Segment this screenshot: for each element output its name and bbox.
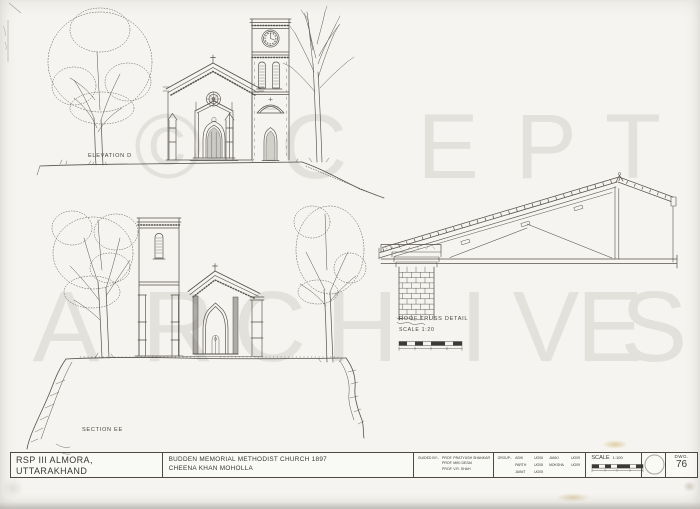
guide-name: PROF. V.R. SHAH bbox=[442, 467, 490, 472]
watermark-letter: R bbox=[142, 277, 214, 377]
watermark-letter: P bbox=[515, 101, 576, 193]
guided-by-cell: GUIDED BY:- PROF. PRATYUSH SHANKAR PROF.… bbox=[414, 453, 494, 477]
drawing-title-cell: BUDDEN MEMORIAL METHODIST CHURCH 1897 CH… bbox=[163, 453, 414, 477]
truss-title-label: ROOF TRUSS DETAIL bbox=[399, 316, 468, 322]
member-code: UG05 bbox=[534, 470, 547, 477]
scale-cell: SCALE1:100 bbox=[586, 453, 642, 477]
guided-by-label: GUIDED BY:- bbox=[418, 456, 439, 477]
dwg-cell: DWG. 76 bbox=[666, 453, 697, 477]
drawing-sheet: © C E P T A R C H I V E S bbox=[0, 0, 700, 509]
watermark-letter: H bbox=[326, 277, 398, 377]
member-name: MOKSHA bbox=[549, 463, 569, 470]
watermark-letter: I bbox=[460, 277, 488, 377]
watermark-letter: S bbox=[621, 277, 688, 377]
title-block: RSP III ALMORA, UTTARAKHAND NOV. 2010 BU… bbox=[10, 452, 698, 478]
paper-smudge bbox=[2, 478, 24, 498]
drawing-title: BUDDEN MEMORIAL METHODIST CHURCH 1897 bbox=[169, 456, 413, 465]
watermark-letter: E bbox=[417, 101, 478, 193]
scale-value: 1:100 bbox=[613, 455, 623, 460]
watermark-letter: V bbox=[513, 277, 580, 377]
clock-face bbox=[262, 30, 279, 47]
watermark-letter: A bbox=[33, 277, 100, 377]
member-name: JANKI bbox=[549, 456, 569, 463]
watermark-letter: C bbox=[281, 101, 347, 193]
member-name: JAINIT bbox=[515, 470, 532, 477]
member-code: UG09 bbox=[571, 463, 583, 470]
project-code: RSP III ALMORA, UTTARAKHAND bbox=[16, 455, 162, 477]
drawing-location: CHEENA KHAN MOHOLLA bbox=[169, 465, 413, 474]
member-code: UG09 bbox=[571, 456, 583, 463]
group-label: GROUP:- bbox=[498, 456, 513, 477]
member-code bbox=[571, 470, 583, 477]
group-members: ASHI UG06 JANKI UG09 PARTH UG08 MOKSHA U… bbox=[515, 456, 583, 477]
scan-marks bbox=[3, 3, 21, 62]
project-cell: RSP III ALMORA, UTTARAKHAND NOV. 2010 bbox=[11, 453, 163, 477]
guides-list: PROF. PRATYUSH SHANKAR PROF. MIKI DESAI … bbox=[442, 456, 490, 477]
truss-scale-label: SCALE 1:20 bbox=[399, 327, 435, 333]
paper-stain bbox=[602, 440, 628, 449]
paper-stain bbox=[683, 481, 696, 492]
member-code: UG06 bbox=[534, 456, 547, 463]
scale-label: SCALE bbox=[591, 455, 609, 461]
watermark-letter: C bbox=[234, 277, 306, 377]
stamp-cell bbox=[642, 453, 666, 477]
paper-stain bbox=[556, 493, 590, 502]
member-code: UG08 bbox=[534, 463, 547, 470]
member-name bbox=[549, 470, 569, 477]
section-label: SECTION EE bbox=[82, 427, 123, 433]
truss-scale-bar bbox=[399, 342, 462, 351]
group-cell: GROUP:- ASHI UG06 JANKI UG09 PARTH UG08 … bbox=[494, 453, 587, 477]
dwg-number: 76 bbox=[666, 459, 697, 470]
watermark-letter: T bbox=[605, 101, 661, 193]
watermark-copyright-symbol: © bbox=[134, 101, 202, 193]
elevation-label: ELEVATION D bbox=[88, 153, 132, 159]
member-name: ASHI bbox=[515, 456, 532, 463]
member-name: PARTH bbox=[515, 463, 532, 470]
